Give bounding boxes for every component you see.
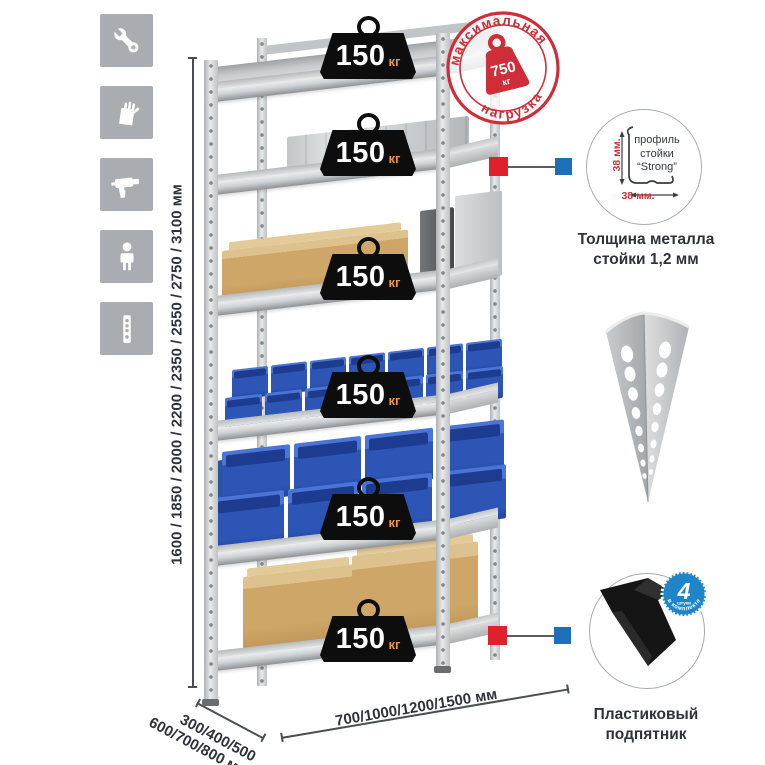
- height-dimension-label: 1600 / 1850 / 2000 / 2200 / 2350 / 2550 …: [169, 55, 186, 695]
- shelf-load-badge-2: 150 кг: [320, 113, 416, 176]
- angle-left-face: [606, 313, 648, 502]
- callout-marker-red-bottom: [488, 626, 507, 645]
- dimension-tick: [188, 57, 197, 59]
- shelf-load-badge-3: 150 кг: [320, 237, 416, 300]
- callout-marker-red-top: [489, 157, 508, 176]
- product-infographic: 1600 / 1850 / 2000 / 2200 / 2350 / 2550 …: [0, 0, 765, 765]
- load-value: 150: [336, 137, 386, 170]
- weight-body: 150 кг: [320, 372, 416, 418]
- profile-caption: Толщина металла стойки 1,2 мм: [575, 230, 717, 270]
- profile-label-line2: стойки: [628, 148, 686, 162]
- shelf-load-badge-4: 150 кг: [320, 355, 416, 418]
- weight-body: 150 кг: [320, 616, 416, 662]
- profile-dim-vertical: 38 мм.: [611, 130, 623, 180]
- profile-caption-line1: Толщина металла: [575, 230, 717, 250]
- badge-small-text: штуки: [677, 601, 691, 606]
- profile-caption-line2: стойки 1,2 мм: [575, 250, 717, 270]
- weight-body: 150 кг: [320, 494, 416, 540]
- load-value: 150: [336, 379, 386, 412]
- foot-caption-line2: подпятник: [575, 725, 717, 745]
- load-unit: кг: [388, 515, 400, 530]
- shelf-load-badge-1: 150 кг: [320, 16, 416, 79]
- dimension-tick: [195, 699, 201, 708]
- rack-foot: [434, 666, 451, 673]
- person-icon: [100, 230, 153, 283]
- rack-post-front-left: [204, 60, 218, 702]
- callout-line-top: [506, 166, 556, 168]
- profile-dim-horizontal: 38 мм.: [608, 190, 668, 202]
- foot-caption: Пластиковый подпятник: [575, 705, 717, 745]
- dimension-tick: [188, 686, 197, 688]
- gloves-icon-glyph: [110, 96, 144, 130]
- load-unit: кг: [388, 151, 400, 166]
- rack-post-icon: [100, 302, 153, 355]
- profile-label-line1: профиль: [628, 134, 686, 148]
- profile-label: профиль стойки “Strong”: [628, 134, 686, 175]
- profile-label-line3: “Strong”: [628, 161, 686, 175]
- load-value: 150: [336, 40, 386, 73]
- shelf-load-badge-5: 150 кг: [320, 477, 416, 540]
- callout-marker-blue-bottom: [554, 627, 571, 644]
- load-unit: кг: [388, 54, 400, 69]
- load-value: 150: [336, 261, 386, 294]
- load-unit: кг: [388, 637, 400, 652]
- rack-foot: [202, 699, 219, 706]
- wrench-icon-glyph: [110, 24, 144, 58]
- dimension-tick: [567, 685, 570, 694]
- weight-body: 150 кг: [320, 33, 416, 79]
- load-value: 150: [336, 623, 386, 656]
- rack-post-front-right: [436, 33, 450, 669]
- callout-line-bottom: [505, 635, 555, 637]
- height-dimension-line: [192, 57, 194, 688]
- wrench-icon: [100, 14, 153, 67]
- drill-icon-glyph: [110, 168, 144, 202]
- shelf-load-badge-6: 150 кг: [320, 599, 416, 662]
- load-value: 150: [336, 501, 386, 534]
- depth-dimension-label: 300/400/500 600/700/800 мм: [146, 699, 259, 765]
- weight-body: 150 кг: [320, 130, 416, 176]
- rack-post-icon-glyph: [110, 312, 144, 346]
- foot-caption-line1: Пластиковый: [575, 705, 717, 725]
- kit-count-badge: 4 штуки в комплекте: [660, 570, 708, 618]
- load-unit: кг: [388, 275, 400, 290]
- dimension-tick: [261, 734, 267, 743]
- gloves-icon: [100, 86, 153, 139]
- load-unit: кг: [388, 393, 400, 408]
- width-dimension-label: 700/1000/1200/1500 мм: [334, 686, 499, 730]
- angle-post-image: [596, 302, 700, 517]
- callout-marker-blue-top: [555, 158, 572, 175]
- drill-icon: [100, 158, 153, 211]
- dimension-tick: [280, 733, 283, 742]
- person-icon-glyph: [110, 240, 144, 274]
- weight-body: 150 кг: [320, 254, 416, 300]
